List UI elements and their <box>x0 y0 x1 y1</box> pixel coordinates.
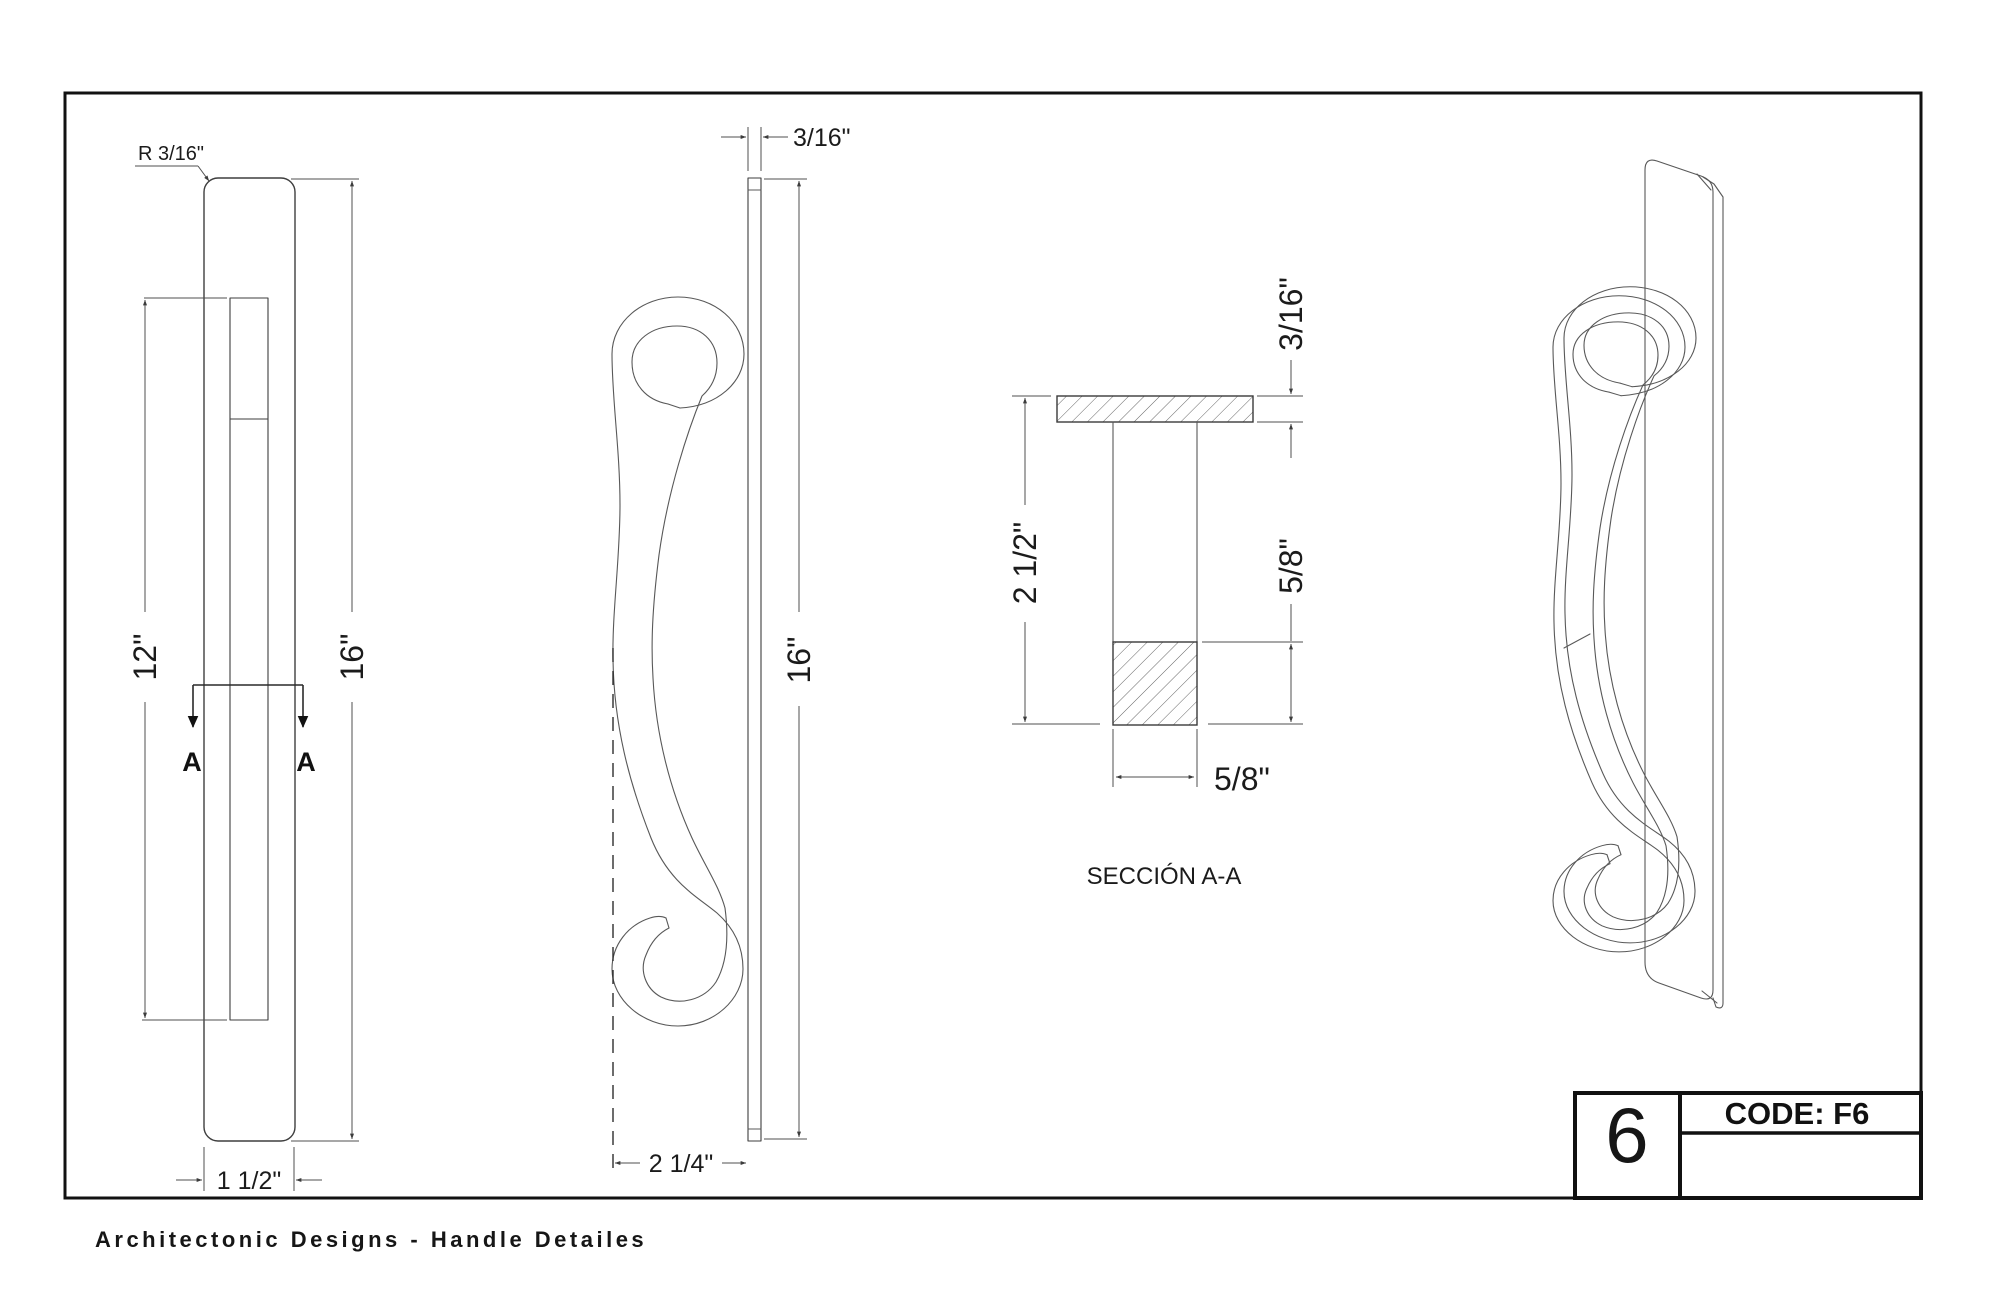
section-bar-height-label: 5/8" <box>1273 538 1309 594</box>
side-height-label: 16" <box>781 637 817 684</box>
drawing-caption: Architectonic Designs - Handle Detailes <box>95 1227 647 1252</box>
section-view: 2 1/2" 3/16" 5/8" 5/8" SECCIÓN A-A <box>1007 277 1309 890</box>
side-thickness-label: 3/16" <box>793 124 851 152</box>
section-bar-width-label: 5/8" <box>1214 761 1270 797</box>
scroll-handle-side-profile <box>612 297 744 1026</box>
handle-bar-front-outline <box>230 298 268 1020</box>
side-view: 3/16" 16" 2 1/4" <box>612 124 851 1178</box>
scroll-handle-iso-depth <box>1553 296 1685 952</box>
handle-iso-joint-line <box>1564 634 1590 648</box>
plate-front-outline <box>204 178 295 1141</box>
radius-leader-line <box>198 166 209 181</box>
front-view: R 3/16" 16" 12" 1 1/2" A A <box>127 143 370 1195</box>
section-bar-square <box>1113 642 1197 725</box>
section-cut-label-right: A <box>296 747 316 777</box>
scroll-handle-iso-front <box>1564 287 1696 943</box>
front-height-label: 16" <box>334 634 370 681</box>
radius-callout-label: R 3/16" <box>138 143 204 165</box>
isometric-view <box>1553 160 1723 1008</box>
side-depth-label: 2 1/4" <box>649 1150 713 1178</box>
section-cut-label-left: A <box>182 747 202 777</box>
front-slot-height-label: 12" <box>127 634 163 681</box>
code-label: CODE: F6 <box>1725 1096 1870 1131</box>
title-block: 6 CODE: F6 <box>1575 1091 1921 1198</box>
sheet-number: 6 <box>1605 1091 1648 1179</box>
plate-iso-front-face <box>1645 160 1713 999</box>
section-plate-bar <box>1057 396 1253 422</box>
front-width-label: 1 1/2" <box>217 1167 281 1195</box>
section-title-label: SECCIÓN A-A <box>1087 863 1242 890</box>
plate-iso-corner-chamfer <box>1697 174 1711 190</box>
section-plate-thickness-label: 3/16" <box>1273 277 1309 351</box>
plate-side-outline <box>748 178 761 1141</box>
section-depth-label: 2 1/2" <box>1007 522 1043 605</box>
plate-iso-corner-chamfer <box>1702 991 1717 1003</box>
technical-drawing-canvas: R 3/16" 16" 12" 1 1/2" A A <box>0 0 2000 1294</box>
